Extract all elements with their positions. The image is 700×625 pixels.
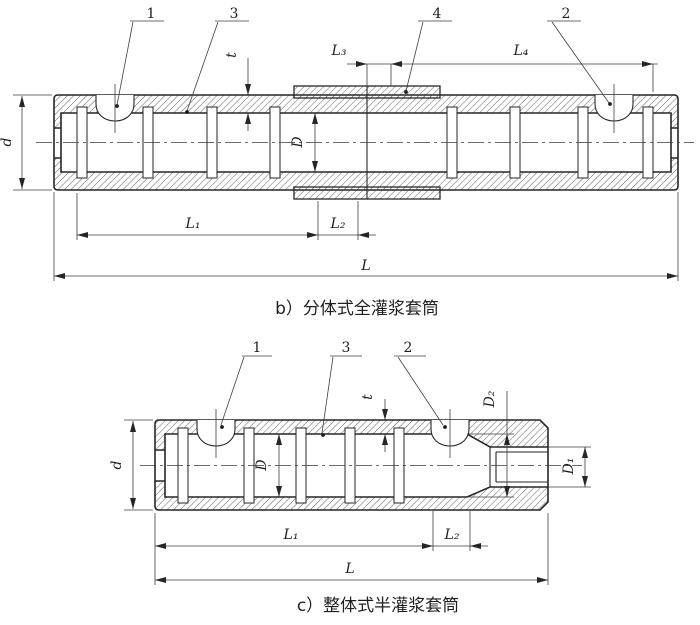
- dim-label-L: L: [344, 561, 354, 577]
- figure-b-split-full-grout-sleeve: 1 3 4 2 d: [0, 6, 694, 319]
- dim-label-L2: L₂: [444, 527, 460, 543]
- dim-L1-L2: L₁ L₂: [77, 193, 376, 240]
- dim-label-L1: L₁: [185, 216, 201, 232]
- dim-label-D: D: [254, 459, 270, 471]
- dim-L1-L2: L₁ L₂: [155, 511, 488, 551]
- dim-D1: D₁: [548, 447, 591, 487]
- figure-c-integral-half-grout-sleeve: 1 3 2 d t: [109, 340, 591, 616]
- callout-2: 2: [562, 6, 571, 22]
- dim-label-L2: L₂: [330, 216, 346, 232]
- threaded-end: [490, 447, 548, 487]
- callout-3: 3: [342, 340, 351, 356]
- dim-label-L1: L₁: [283, 527, 299, 543]
- caption-figure-b: b）分体式全灌浆套筒: [275, 299, 439, 319]
- callout-1: 1: [147, 6, 156, 22]
- dim-label-d: d: [109, 460, 125, 469]
- dim-t: t: [224, 52, 251, 131]
- dim-label-t: t: [224, 52, 240, 58]
- dim-label-L4: L₄: [513, 43, 529, 59]
- dim-label-L: L: [360, 258, 370, 274]
- dim-label-D2: D₂: [482, 390, 498, 408]
- dim-label-d: d: [0, 137, 15, 146]
- callout-2: 2: [404, 340, 413, 356]
- callout-1: 1: [253, 340, 262, 356]
- caption-figure-c: c）整体式半灌浆套筒: [297, 596, 459, 616]
- dim-label-t: t: [360, 394, 376, 400]
- callout-4: 4: [433, 6, 442, 22]
- dim-L3-L4: L₃ L₄: [331, 43, 658, 92]
- grout-sleeve-technical-drawing: 1 3 4 2 d: [0, 0, 700, 625]
- dim-label-D: D: [290, 136, 306, 148]
- dim-L: L: [155, 513, 548, 585]
- drawing-page: 1 3 4 2 d: [0, 0, 700, 625]
- dim-d: d: [109, 420, 153, 510]
- dim-label-D1: D₁: [561, 458, 577, 476]
- dim-label-L3: L₃: [331, 43, 347, 59]
- callout-3: 3: [230, 6, 239, 22]
